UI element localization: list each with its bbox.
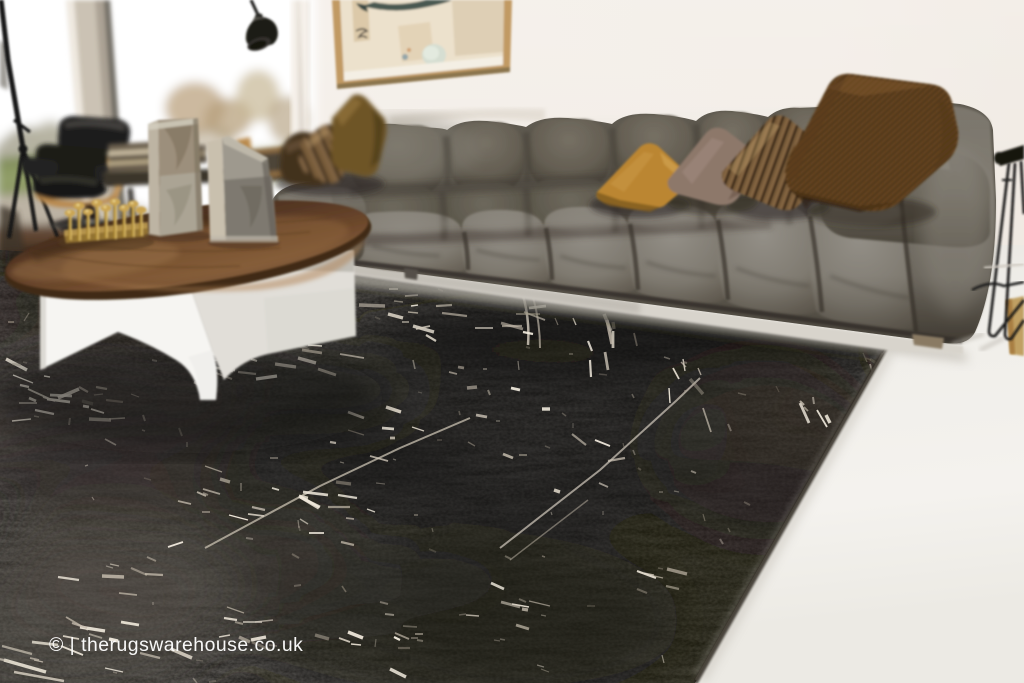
svg-text:© | therugswarehouse.co.uk: © | therugswarehouse.co.uk bbox=[49, 634, 303, 656]
